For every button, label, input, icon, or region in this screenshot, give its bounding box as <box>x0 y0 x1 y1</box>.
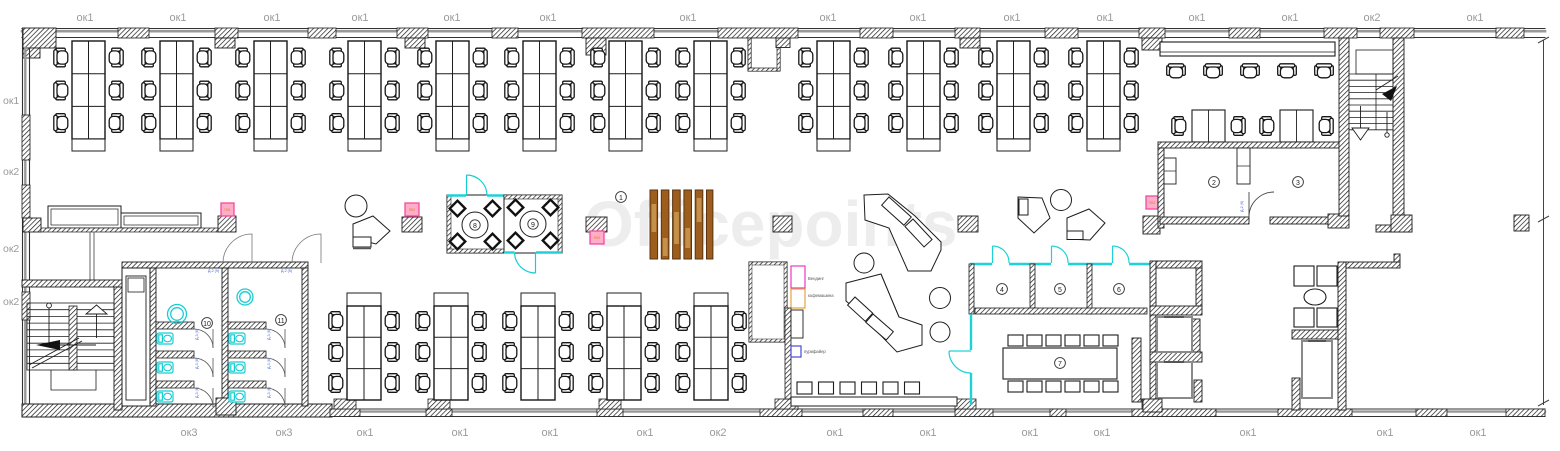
svg-text:4: 4 <box>1000 287 1004 294</box>
svg-text:ок1: ок1 <box>819 12 836 24</box>
svg-text:ок1: ок1 <box>1093 427 1110 439</box>
svg-text:ок1: ок1 <box>351 12 368 24</box>
svg-text:6: 6 <box>1117 287 1121 294</box>
svg-text:Д-2 (5): Д-2 (5) <box>281 269 292 273</box>
svg-text:ок1: ок1 <box>636 427 653 439</box>
svg-text:Д-3 (6): Д-3 (6) <box>195 387 199 398</box>
svg-text:ок1: ок1 <box>1239 427 1256 439</box>
svg-text:ок1: ок1 <box>76 12 93 24</box>
svg-text:кофемашина: кофемашина <box>808 293 834 298</box>
svg-text:ок1: ок1 <box>169 12 186 24</box>
svg-text:ок1: ок1 <box>541 427 558 439</box>
svg-text:ок1: ок1 <box>909 12 926 24</box>
svg-text:ок1: ок1 <box>451 427 468 439</box>
svg-text:ок3: ок3 <box>180 427 197 439</box>
svg-text:ок1: ок1 <box>1469 427 1486 439</box>
svg-text:ок1: ок1 <box>443 12 460 24</box>
svg-text:ок1: ок1 <box>1188 12 1205 24</box>
svg-text:ок1: ок1 <box>1466 12 1483 24</box>
svg-text:Д-3 (6): Д-3 (6) <box>267 358 271 369</box>
svg-text:ПК2: ПК2 <box>409 208 415 212</box>
svg-text:ок1: ок1 <box>919 427 936 439</box>
svg-text:ок2: ок2 <box>709 427 726 439</box>
svg-text:ок2: ок2 <box>3 243 19 255</box>
svg-text:ПК4: ПК4 <box>1149 201 1155 205</box>
svg-text:ок1: ок1 <box>679 12 696 24</box>
svg-text:2: 2 <box>1212 180 1216 187</box>
svg-text:ок1: ок1 <box>263 12 280 24</box>
svg-text:7: 7 <box>1058 361 1062 368</box>
svg-text:Д-3 (6): Д-3 (6) <box>195 329 199 340</box>
svg-text:ок1: ок1 <box>3 95 19 107</box>
svg-text:Вендинг: Вендинг <box>808 276 825 281</box>
svg-text:1: 1 <box>619 195 623 202</box>
svg-text:Д-3 (6): Д-3 (6) <box>267 329 271 340</box>
svg-text:ок2: ок2 <box>3 166 19 178</box>
svg-text:ок1: ок1 <box>539 12 556 24</box>
svg-text:пурифайер: пурифайер <box>804 349 826 354</box>
svg-text:Д-2 (9): Д-2 (9) <box>1240 201 1244 212</box>
svg-text:ок1: ок1 <box>826 427 843 439</box>
svg-text:ПК1: ПК1 <box>225 208 231 212</box>
svg-text:11: 11 <box>277 318 284 325</box>
svg-text:ок1: ок1 <box>1096 12 1113 24</box>
svg-text:ок2: ок2 <box>3 296 19 308</box>
svg-text:3: 3 <box>1296 180 1300 187</box>
svg-text:9: 9 <box>531 222 535 229</box>
svg-text:ок1: ок1 <box>356 427 373 439</box>
svg-text:ПК3: ПК3 <box>594 236 600 240</box>
svg-text:5: 5 <box>1058 287 1062 294</box>
svg-text:ок1: ок1 <box>1021 427 1038 439</box>
svg-text:ок1: ок1 <box>1281 12 1298 24</box>
svg-text:ок2: ок2 <box>1363 12 1380 24</box>
svg-text:ок3: ок3 <box>275 427 292 439</box>
svg-text:Д-3 (6): Д-3 (6) <box>195 358 199 369</box>
svg-text:8: 8 <box>473 223 477 230</box>
svg-text:Д-3 (6): Д-3 (6) <box>267 387 271 398</box>
svg-text:Д-2 (9): Д-2 (9) <box>208 269 219 273</box>
svg-text:ок1: ок1 <box>1003 12 1020 24</box>
svg-text:10: 10 <box>203 321 211 328</box>
svg-text:ок1: ок1 <box>1376 427 1393 439</box>
